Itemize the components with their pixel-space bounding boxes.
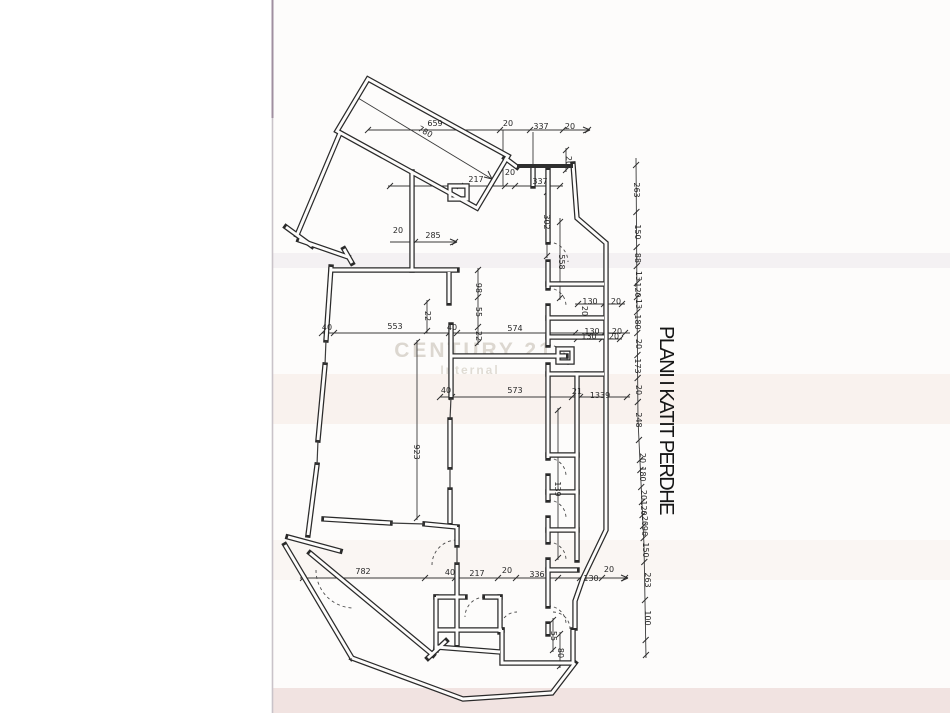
- dim-label: 20: [580, 306, 589, 316]
- dim-label: 130: [582, 297, 597, 306]
- dim-label: 40: [322, 323, 332, 332]
- floor-plan-drawing: CENTURY 21 Internal: [0, 0, 950, 713]
- dim-label: 40: [441, 386, 451, 395]
- dim-label: 96: [640, 526, 649, 536]
- dim-label: 923: [412, 444, 421, 459]
- scan-band-warm: [273, 374, 950, 424]
- plan-title: PLANI I KATIT PERDHE: [655, 326, 677, 516]
- dim-label: 263: [632, 182, 641, 197]
- dim-label: 21: [572, 387, 582, 396]
- dim-label: 573: [507, 386, 522, 395]
- dim-label: 20: [634, 385, 643, 395]
- dim-label: 13: [634, 271, 643, 281]
- dim-label: 180: [633, 314, 642, 329]
- dim-label: 130: [583, 574, 598, 583]
- dim-label: 139: [553, 481, 562, 496]
- dim-label: 302: [542, 214, 551, 229]
- scanned-floor-plan-page: CENTURY 21 Internal: [0, 0, 950, 713]
- dim-label: 13: [634, 299, 643, 309]
- dim-label: 20: [393, 226, 403, 235]
- dim-label: 20: [640, 516, 649, 526]
- dim-label: 20: [638, 453, 647, 463]
- dim-label: 1339: [590, 391, 610, 400]
- dim-label: 20: [611, 297, 621, 306]
- dim-label: 20: [604, 565, 614, 574]
- dim-label: 150: [633, 224, 642, 239]
- dim-label: 88: [633, 253, 642, 263]
- dim-label: 337: [532, 177, 547, 186]
- dim-label: 337: [533, 122, 548, 131]
- dim-label: 336: [529, 570, 544, 579]
- scan-band-bottom: [273, 688, 950, 713]
- dim-label: 20: [634, 339, 643, 349]
- dim-label: 248: [634, 412, 643, 427]
- dim-label: 217: [468, 175, 483, 184]
- dim-label: 20: [609, 332, 619, 341]
- dim-label: 20: [503, 119, 513, 128]
- dim-label: 659: [427, 119, 442, 128]
- dim-label: 217: [469, 569, 484, 578]
- dim-label: 80: [556, 648, 565, 658]
- dim-label: 40: [445, 568, 455, 577]
- dim-label: 20: [639, 490, 648, 500]
- dim-label: 130: [581, 332, 596, 341]
- dim-label: 20: [502, 566, 512, 575]
- scan-band-gray: [273, 253, 950, 268]
- dim-label: 22: [474, 331, 483, 341]
- dim-label: 553: [387, 322, 402, 331]
- dim-label: 150: [641, 542, 650, 557]
- dim-label: 574: [507, 324, 522, 333]
- dim-label: 100: [643, 610, 652, 625]
- dim-label: 55: [474, 307, 483, 317]
- dim-label: 20: [564, 156, 573, 166]
- dim-label: 263: [643, 572, 652, 587]
- dim-label: 120: [639, 500, 648, 515]
- dim-label: 558: [557, 254, 566, 269]
- scan-band-beige: [273, 540, 950, 580]
- dim-label: 782: [355, 567, 370, 576]
- dim-label: 55: [549, 631, 558, 641]
- dim-label: 173: [633, 358, 642, 373]
- dim-label: 22: [423, 311, 432, 321]
- dim-label: 20: [565, 122, 575, 131]
- dim-label: 285: [425, 231, 440, 240]
- dim-label: 98: [474, 283, 483, 293]
- dim-label: 40: [447, 323, 457, 332]
- dim-label: 180: [638, 466, 647, 481]
- dim-label: 120: [633, 282, 642, 297]
- dim-label: 20: [505, 168, 515, 177]
